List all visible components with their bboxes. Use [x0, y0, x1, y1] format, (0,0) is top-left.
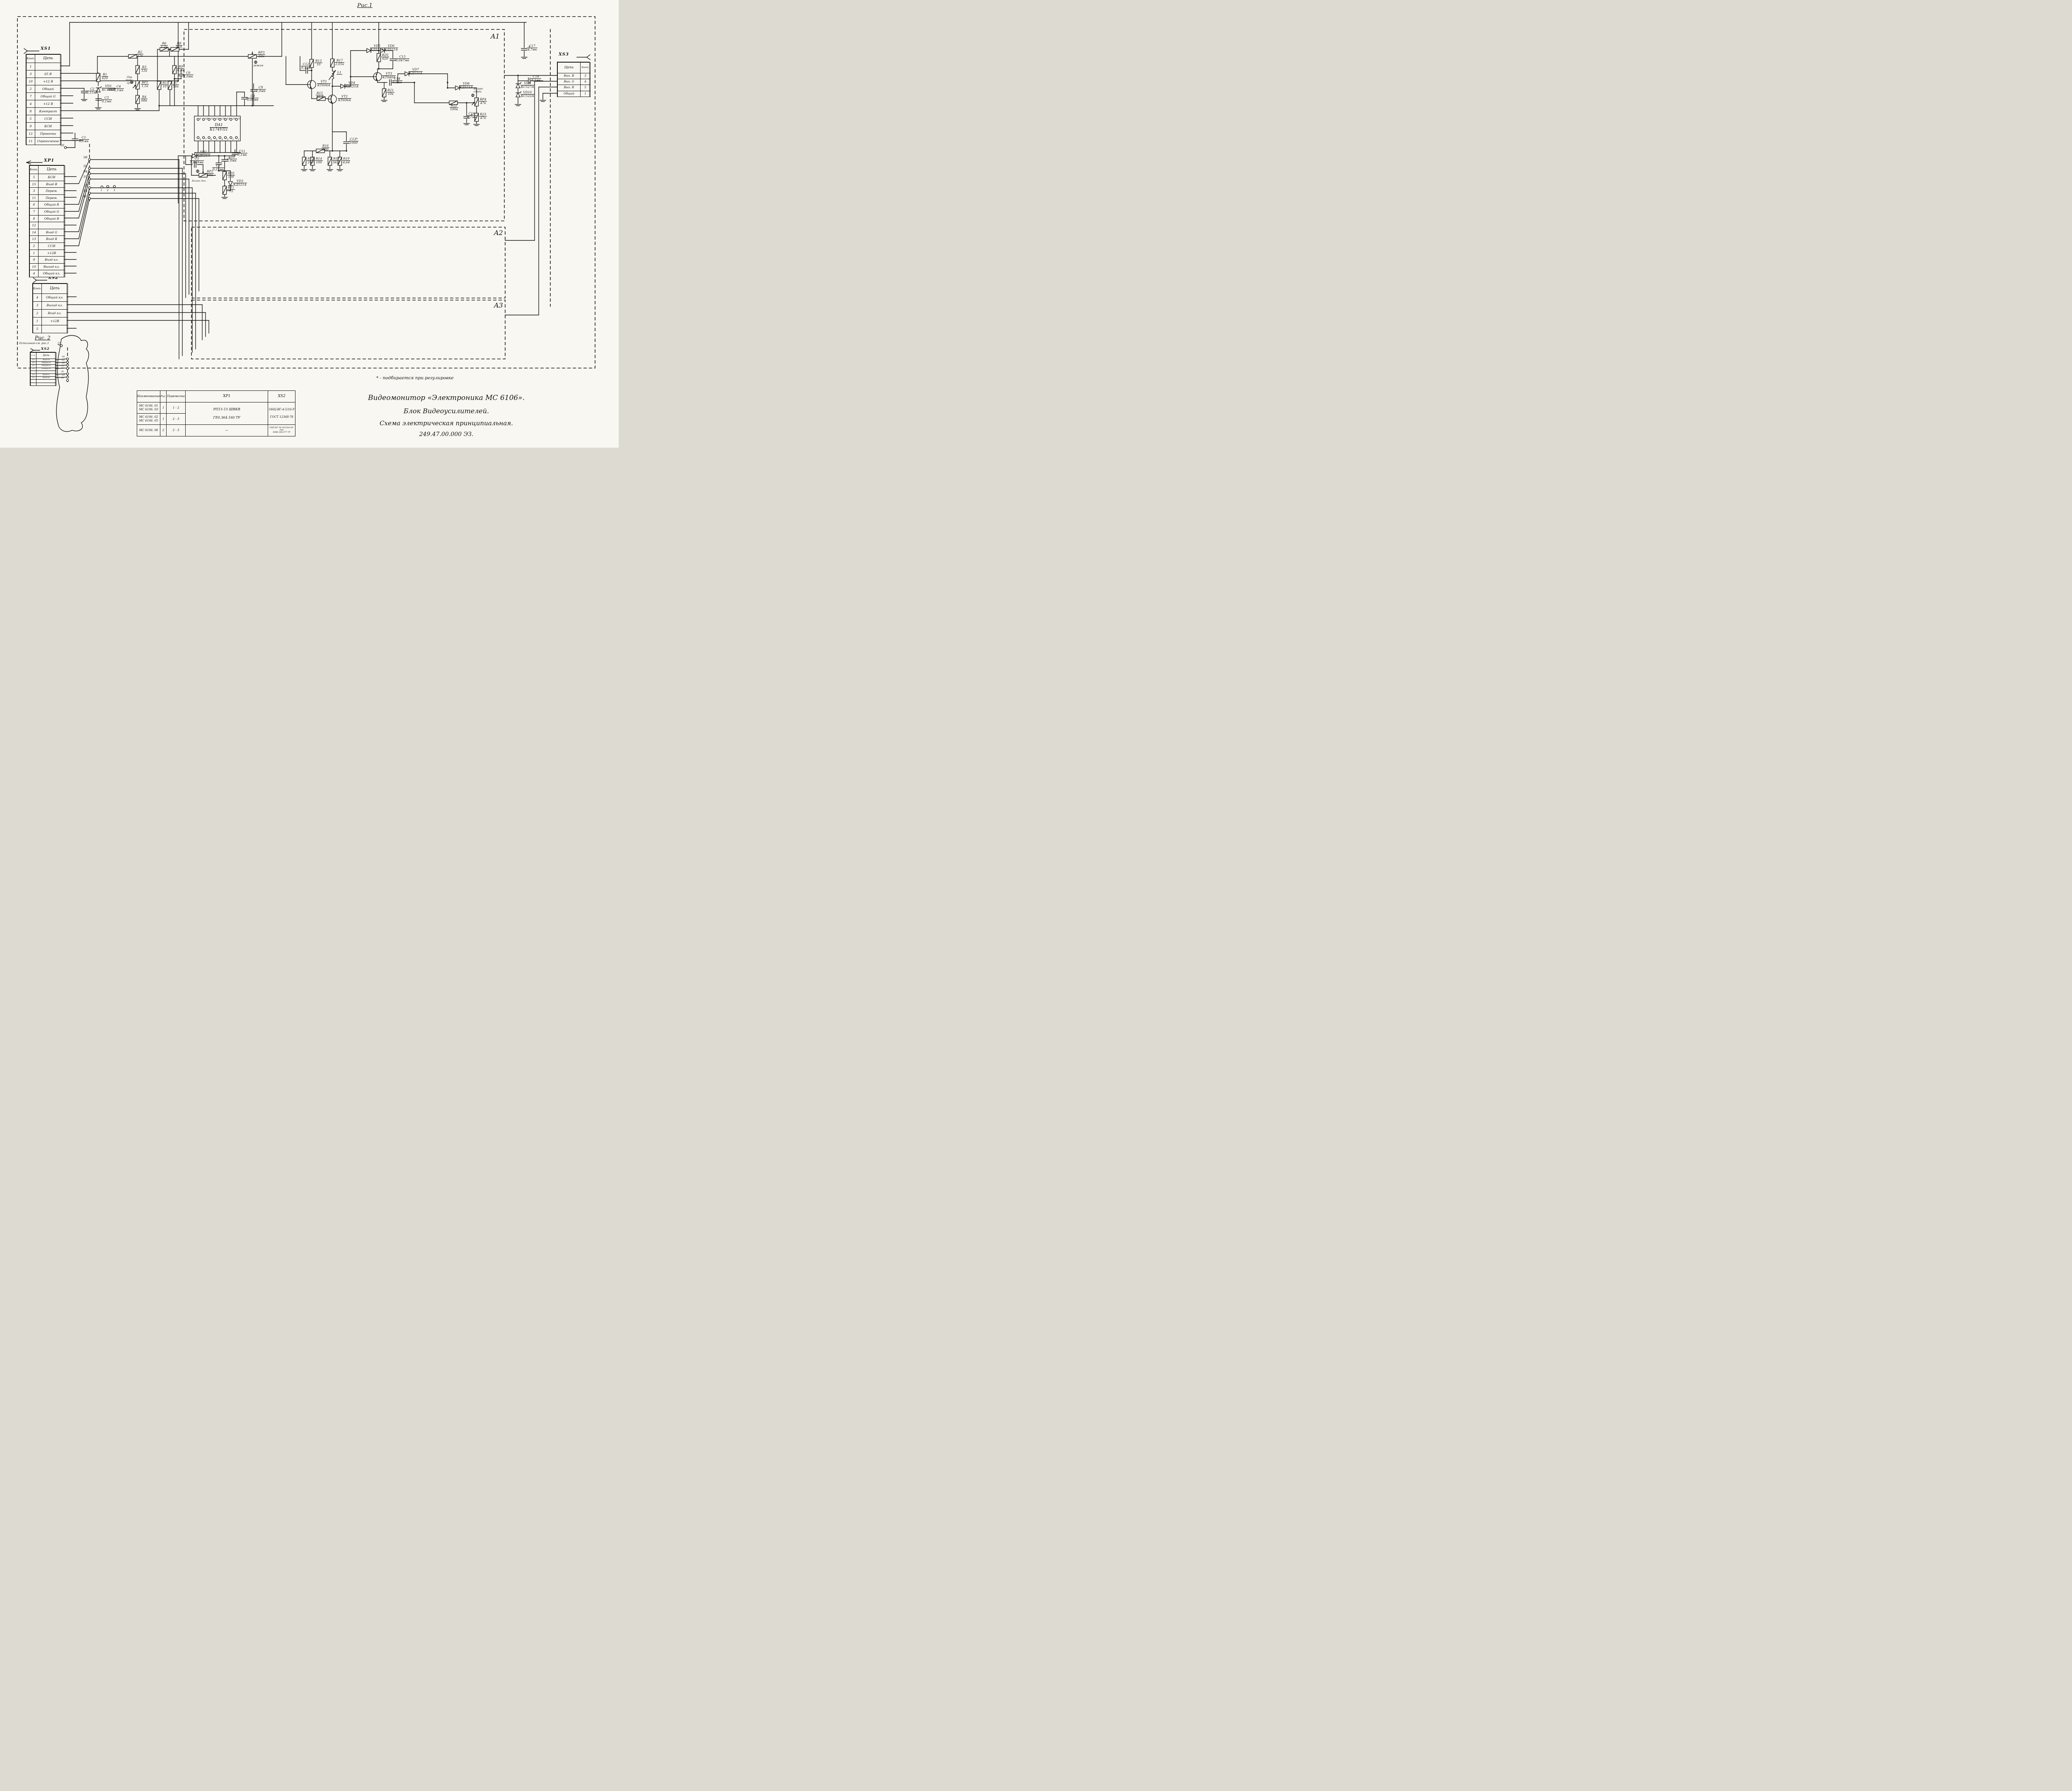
symbol-L1	[329, 70, 336, 80]
connector-table-xs1: Конт.Цепь1365 В10+12 В2Общий7Общий G4+12…	[26, 54, 61, 145]
cell-circuit: Общий R	[39, 201, 65, 208]
symbol-R20	[377, 53, 381, 62]
connector-title-xp1: ХР1	[44, 158, 54, 163]
connector-title-xs3: XS3	[559, 52, 569, 57]
label-R17: R172,05к	[335, 59, 344, 66]
cell-circuit: +12В	[42, 317, 68, 325]
jumper-cell-name: МС 6106. 01 МС 6106. 03	[137, 402, 160, 414]
cell-circuit	[36, 371, 56, 373]
figure1-caption: Рис.1	[357, 2, 373, 9]
block-label-a1: A1	[491, 32, 500, 40]
cell-pin: 7	[30, 208, 39, 215]
label-C6: C61,0мк	[183, 71, 194, 79]
table-row: 8Общий В	[30, 215, 65, 222]
jumper-header-fig: Рис.	[160, 391, 167, 402]
table-row: 8Контраст	[27, 108, 61, 115]
symbol-VT2	[328, 95, 336, 103]
table-row: 7Общий G	[30, 208, 65, 215]
connector-table-xs3: ЦепьКонт.Вых. В3Вых. G4Вых. R5Общий1	[557, 62, 590, 97]
label-C12: C120,1мк	[301, 63, 311, 70]
label-C13: C13*1000	[349, 138, 358, 145]
table-header: Конт.Цепь	[27, 55, 61, 63]
jumper-pad-2: 2	[107, 189, 109, 192]
node-fig1-2: Э8	[83, 156, 87, 159]
cell-pin: 12	[30, 222, 39, 229]
cell-circuit: Перем.	[39, 188, 65, 195]
cell-circuit: Общий кл.	[39, 270, 65, 277]
cell-pin: 5	[581, 85, 591, 91]
table-row: 14Общий В	[31, 368, 56, 371]
label-VD6: VD6КД521А	[384, 44, 398, 52]
cell-circuit	[36, 383, 56, 385]
table-row: 4Общий кл.	[30, 270, 65, 277]
cell-pin: 2	[30, 242, 39, 250]
cell-circuit	[39, 222, 65, 229]
table-row: 9КСИ	[27, 123, 61, 130]
jumper-pad-1: 1	[101, 189, 102, 192]
cell-pin: 8	[27, 108, 35, 115]
label-R5: R510	[162, 81, 167, 89]
annotation-rp3: режим	[254, 65, 263, 68]
cell-pin: 3	[581, 73, 591, 79]
tuning-note: * - подбирается при регулировке	[376, 376, 454, 380]
connector-title-xs1: XS1	[41, 46, 51, 51]
node-fig2-6: Э5	[61, 371, 64, 373]
cell-pin: 15	[30, 181, 39, 188]
cell-pin: 14	[31, 368, 36, 371]
table-row	[31, 380, 56, 383]
jumper-cell-fig: 1	[160, 414, 167, 425]
cell-circuit: Выход кл.	[39, 263, 65, 270]
cell-pin	[31, 371, 36, 373]
table-row: 13Вход G	[31, 373, 56, 376]
ic-pin-2: 2	[232, 138, 234, 141]
table-row: 3Перем.	[30, 188, 65, 195]
cell-circuit	[42, 325, 68, 333]
jumper-cell-jumper: 2 - 3	[167, 425, 186, 436]
table-row: 1	[27, 63, 61, 70]
jumper-cell-xs2: ОНЦ-ВГ-4-5/16-Р ГОСТ 12368-78	[268, 402, 295, 425]
cell-circuit: КСИ	[39, 174, 65, 181]
cell-pin: 5	[27, 115, 35, 123]
label-R1: R1620	[102, 73, 108, 80]
table-row: Общий1	[558, 91, 591, 97]
symbol-R11	[223, 186, 227, 194]
symbol-VT1	[307, 80, 316, 89]
table-row: 2Общий	[27, 85, 61, 93]
cell-pin: 13	[31, 373, 36, 376]
ic-pin-8: 8	[200, 138, 201, 141]
cell-pin: 14	[30, 229, 39, 236]
connector-table-xs2: Конт.Цепь4Общий кл.3Выход кл.2Вход кл.1+…	[32, 283, 67, 333]
label-C10: C101,0мк	[227, 155, 237, 163]
node-fig1-5: Э7	[83, 175, 87, 179]
symbol-C1	[72, 139, 78, 141]
label-VT2: VT2КТ606А	[338, 95, 351, 102]
header-pin: Конт.	[27, 55, 35, 63]
jumper-header-name: Наименование	[137, 391, 160, 402]
cell-pin: 1	[30, 250, 39, 257]
node-fig1-4: Э4	[83, 170, 87, 173]
label-VD2: VD2КД521А	[196, 150, 211, 158]
symbol-C15	[390, 59, 396, 61]
label-R16: R16580	[322, 144, 329, 152]
label-R8: R8820	[176, 42, 182, 49]
node-fig2-4: Э4	[62, 362, 65, 364]
table-row: 11Вход R	[31, 377, 56, 380]
cell-circuit: Общий	[35, 85, 61, 93]
ic-pin-7: 7	[205, 138, 207, 141]
ic-pin-13: 13	[221, 118, 224, 120]
label-R2: R212к	[137, 51, 143, 58]
cell-circuit: Вход В	[36, 359, 56, 362]
symbol-R3	[136, 65, 140, 74]
table-row: 10Выход кл.	[30, 263, 65, 270]
label-C9: C91,0мк	[256, 86, 266, 93]
ic-pin-3: 3	[227, 138, 229, 141]
symbol-C13	[344, 142, 349, 143]
node-fig2-8: Э6	[61, 377, 64, 379]
table-row: 12Привязка	[27, 130, 61, 138]
symbol-R1	[97, 73, 100, 82]
jumper-pad-3: 3	[114, 189, 115, 192]
ic-pin-14: 14	[227, 118, 230, 120]
cell-circuit: Общий кл.	[42, 294, 68, 302]
table-row: 2ССИ	[30, 242, 65, 250]
header-circuit: Цепь	[35, 55, 61, 63]
table-row: 1+12В	[30, 250, 65, 257]
symbol-C3	[96, 99, 102, 100]
cell-pin: 6	[30, 201, 39, 208]
title-line-1: Видеомонитор «Электроника МС 6106».	[363, 394, 530, 402]
ic-pin-10: 10	[205, 118, 208, 120]
table-row: 1+12В	[33, 317, 68, 325]
cell-pin: 11	[30, 194, 39, 201]
cell-circuit: Вход R	[39, 236, 65, 243]
label-RP1: RP11,5к	[141, 81, 149, 88]
cell-circuit: Общий G	[36, 365, 56, 368]
schematic-page: +++ Рис.1 A1 A2 A3 XS1 ХР1 XS2 XS2 XS3 Р…	[0, 0, 619, 448]
table-row: Вых. В3	[558, 73, 591, 79]
cell-circuit: Вых. G	[558, 79, 581, 85]
cell-pin: 11	[27, 138, 35, 145]
cell-pin: 13	[30, 236, 39, 243]
cell-pin: 9	[30, 257, 39, 264]
cell-circuit	[35, 63, 61, 70]
node-fig1-1: Э1	[61, 144, 65, 147]
symbol-C14	[390, 80, 391, 85]
cell-pin: 1	[581, 91, 591, 97]
table-row: 12Общий G	[31, 365, 56, 368]
cell-circuit: Общий	[558, 91, 581, 97]
table-row: Вых. R5	[558, 85, 591, 91]
cell-pin: 7	[27, 93, 35, 100]
table-row: 365 В	[27, 70, 61, 78]
ic-pin-5: 5	[216, 138, 218, 141]
label-R3: R312к	[141, 65, 148, 73]
ic-pin-1: 1	[238, 138, 240, 141]
cell-pin: 12	[27, 130, 35, 138]
table-row: 10Общий R	[31, 362, 56, 365]
ic-pin-9: 9	[200, 118, 201, 120]
connector-title-xs2-fig2: XS2	[41, 347, 50, 351]
header-circuit: Цепь	[36, 353, 56, 359]
label-C16: C164,7мк	[467, 112, 477, 119]
node-fig2-3: Э2	[62, 359, 65, 361]
cell-pin: 4	[30, 270, 39, 277]
label-R20: R20620	[381, 53, 389, 61]
ic-pin-6: 6	[211, 138, 212, 141]
table-row: 2Вход кл.	[33, 310, 68, 317]
label-R22: R22100к	[450, 104, 458, 111]
symbol-R5	[157, 81, 161, 90]
label-R10: R10100	[227, 172, 235, 179]
title-line-3: Схема электрическая принципиальная.	[363, 419, 530, 427]
figure2-caption: Рис. 2	[35, 335, 51, 341]
node-fig1-3: Э2	[83, 165, 87, 168]
cell-circuit: Контраст	[35, 108, 61, 115]
jumper-cell-xs2-last: ОНП-КГ-56-16/254×85-Р50 НЩ0.364.077 ТУ	[268, 425, 295, 436]
ic-pin-12: 12	[216, 118, 219, 120]
cell-circuit: Вход R	[36, 377, 56, 380]
cell-circuit: КСИ	[35, 123, 61, 130]
label-C15: C150,047мк	[395, 55, 409, 63]
table-row: 9Вход кл.	[30, 257, 65, 264]
label-R21: R2110к	[387, 89, 395, 96]
jumper-cell-name: МС 6106. 06	[137, 425, 160, 436]
node-fig2-7: Э3	[62, 374, 65, 376]
table-row	[31, 383, 56, 385]
cell-pin: 10	[30, 263, 39, 270]
table-row: Вых. G4	[558, 79, 591, 85]
label-VD3: VD3КД521А	[233, 179, 247, 187]
cell-circuit: Вход G	[36, 373, 56, 376]
label-R15: R1546,4	[316, 92, 324, 99]
label-R11: R1175	[227, 186, 235, 194]
jumper-cell-fig: 2	[160, 425, 167, 436]
table-row: 4+12 В	[27, 100, 61, 108]
symbol-VD4	[341, 84, 345, 88]
table-row	[31, 371, 56, 373]
label-VD5: VD5КД521А	[370, 44, 384, 52]
node-fig2-1: Э1	[58, 342, 61, 344]
label-C17: C174,7мк	[527, 44, 537, 52]
symbol-RP4	[472, 98, 479, 106]
cell-circuit: Перем.	[39, 194, 65, 201]
cell-pin: 12	[31, 365, 36, 368]
cell-circuit: Общий В	[39, 215, 65, 222]
cell-pin	[31, 383, 36, 385]
node-fig2-5: Э7	[62, 365, 65, 367]
cell-circuit: Вход В	[39, 181, 65, 188]
symbol-R2	[128, 55, 137, 58]
symbol-VT3	[373, 73, 382, 81]
ic-label-da1: DA1К174УП1	[210, 123, 228, 132]
label-VD1: VD1КС156А	[102, 85, 116, 92]
cell-circuit: +12 В	[35, 100, 61, 108]
label-VD9: VD9КС527А	[520, 82, 535, 89]
header-pin: Конт.	[33, 284, 42, 294]
header-pin: Конт.	[30, 166, 39, 174]
header-pin: Конт.	[581, 63, 591, 73]
table-row: 5ССИ	[27, 115, 61, 123]
cell-pin: 3	[30, 188, 39, 195]
cell-pin: 11	[31, 377, 36, 380]
table-row: 15Вход В	[30, 181, 65, 188]
table-header: Конт.Цепь	[31, 353, 56, 359]
connector-table-xp1: Конт.Цепь5КСИ15Вход В3Перем.11Перем.6Общ…	[29, 165, 64, 277]
cell-pin: 3	[27, 70, 35, 78]
table-row: 6Общий R	[30, 201, 65, 208]
cell-circuit: Общий G	[39, 208, 65, 215]
cell-pin: 4	[33, 294, 42, 302]
jumper-header-xp1: ХР1	[186, 391, 268, 402]
annotation-rp1: Огр. тока луча	[123, 76, 133, 85]
node-fig2-2: Э8	[62, 356, 65, 358]
table-row: 15Вход В	[31, 359, 56, 362]
cell-pin: 9	[27, 123, 35, 130]
symbol-R18	[328, 157, 332, 165]
label-C11: C110,1мк	[237, 150, 247, 157]
table-row: 5	[33, 325, 68, 333]
label-L1: L1	[336, 71, 342, 75]
label-VD10: VD10КС522А	[520, 91, 535, 98]
cell-circuit: ССИ	[35, 115, 61, 123]
label-C8: C80,01мк	[247, 95, 259, 102]
cell-circuit: ССИ	[39, 242, 65, 250]
symbol-R12	[303, 157, 306, 165]
table-header: Конт.Цепь	[33, 284, 68, 294]
title-line-4: 249.47.00.000 ЭЗ.	[363, 431, 530, 438]
header-circuit: Цепь	[42, 284, 68, 294]
label-R18: R1856,2	[332, 157, 340, 165]
cell-pin: 1	[27, 63, 35, 70]
cell-circuit: Общий R	[36, 362, 56, 365]
cell-circuit: Вход кл.	[42, 310, 68, 317]
table-row: 14Вход G	[30, 229, 65, 236]
cell-circuit: Привязка	[35, 130, 61, 138]
jumper-table: Наименование Рис. Перемычка ХР1 XS2 МС 6…	[137, 390, 295, 436]
cell-pin: 5	[33, 325, 42, 333]
jumper-cell-fig: 1	[160, 402, 167, 414]
block-label-a2: A2	[494, 229, 503, 237]
annotation-rp4: Баланс стат.	[474, 88, 483, 94]
cell-pin: 2	[33, 310, 42, 317]
table-row: 13Вход R	[30, 236, 65, 243]
cell-circuit: Вых. В	[558, 73, 581, 79]
symbol-RP3	[248, 52, 257, 58]
symbol-R10	[223, 172, 227, 180]
table-row: 5КСИ	[30, 174, 65, 181]
cell-circuit: +12 В	[35, 78, 61, 85]
cell-pin: 15	[31, 359, 36, 362]
node-fig1-6: Э5	[84, 184, 88, 187]
table-header: ЦепьКонт.	[558, 63, 591, 73]
label-VD7: VD7КД521А	[409, 68, 423, 75]
label-RP3: RP322к	[257, 51, 265, 58]
cell-pin: 2	[27, 85, 35, 93]
symbol-R21	[382, 89, 386, 97]
cell-circuit: Общий В	[36, 368, 56, 371]
cell-pin: 1	[33, 317, 42, 325]
header-circuit: Цепь	[558, 63, 581, 73]
table-row: 12	[30, 222, 65, 229]
table-row: 3Выход кл.	[33, 302, 68, 310]
label-C7: C70,22мк	[212, 164, 224, 172]
label-C18: C180,1мк	[531, 75, 541, 82]
node-fig1-8: Э6	[82, 195, 87, 198]
cell-circuit: Общий G	[35, 93, 61, 100]
jumper-cell-name: МС 6106. 02 МС 6106. 05	[137, 414, 160, 425]
cell-circuit: Ограничение	[35, 138, 61, 145]
symbol-VD3	[228, 182, 232, 186]
ic-pin-4: 4	[221, 138, 223, 141]
figure2-subcaption: Остальное-см. рис.1	[19, 342, 49, 345]
cell-circuit: +12В	[39, 250, 65, 257]
cell-circuit: Вых. R	[558, 85, 581, 91]
header-pin: Конт.	[31, 353, 36, 359]
label-VT3: VT3КТ940А	[382, 72, 396, 80]
cell-pin: 10	[27, 78, 35, 85]
cell-pin: 8	[30, 215, 39, 222]
jumper-cell-jumper: 1 - 2	[167, 402, 186, 414]
jumper-cell-xp1-last: —	[186, 425, 268, 436]
jumper-header-xs2: XS2	[268, 391, 295, 402]
table-row: 7Общий G	[27, 93, 61, 100]
cell-circuit	[36, 380, 56, 383]
label-C2: C20,15мк	[86, 87, 98, 95]
cell-circuit: Вход G	[39, 229, 65, 236]
annotation-rp2: Баланс дин.	[192, 180, 206, 182]
table-row: МС 6106. 06 2 2 - 3 — ОНП-КГ-56-16/254×8…	[137, 425, 295, 436]
label-R14: R14100	[315, 157, 323, 165]
label-VD8: VD8КД521А	[459, 82, 473, 90]
label-R23: R2347к	[479, 113, 487, 120]
ic-pin-15: 15	[232, 118, 235, 120]
cell-circuit: Выход кл.	[42, 302, 68, 310]
cell-circuit: Вход кл.	[39, 257, 65, 264]
table-row: 4Общий кл.	[33, 294, 68, 302]
cell-pin: 4	[27, 100, 35, 108]
label-VT1: VT1КТ606А	[317, 80, 331, 87]
table-row: 11Ограничение	[27, 138, 61, 145]
cell-pin: 10	[31, 362, 36, 365]
label-VD4: VD4КД521А	[345, 81, 359, 89]
label-R7: R756к	[172, 81, 179, 89]
jumper-cell-jumper: 2 - 3	[167, 414, 186, 425]
cell-pin: 5	[30, 174, 39, 181]
symbol-R4	[136, 95, 140, 104]
jumper-cell-xp1: РП15-15 ШВКВ ГЕ0.364.160 ТУ	[186, 402, 268, 425]
table-row: 11Перем.	[30, 194, 65, 201]
table-row: 10+12 В	[27, 78, 61, 85]
label-R13: R1310	[315, 59, 322, 67]
symbol-R7	[168, 81, 172, 90]
label-R19: R194,64	[342, 157, 350, 165]
label-C1: C10,1мк	[79, 136, 89, 143]
cell-pin	[31, 380, 36, 383]
connector-table-xs2_fig2: Конт.Цепь15Вход В10Общий R12Общий G14Общ…	[30, 352, 56, 386]
label-C5: C50,068мк	[190, 157, 204, 165]
cell-circuit: 65 В	[35, 70, 61, 78]
jumper-header-jumper: Перемычка	[167, 391, 186, 402]
label-RP4: RP447к	[479, 98, 487, 105]
node-fig1-7: Э3	[83, 189, 87, 193]
label-C3: C30,1мк	[102, 96, 112, 104]
symbol-R17	[331, 59, 334, 67]
table-row: МС 6106. 01 МС 6106. 03 1 1 - 2 РП15-15 …	[137, 402, 295, 414]
label-R6: R61,2к	[160, 42, 168, 49]
